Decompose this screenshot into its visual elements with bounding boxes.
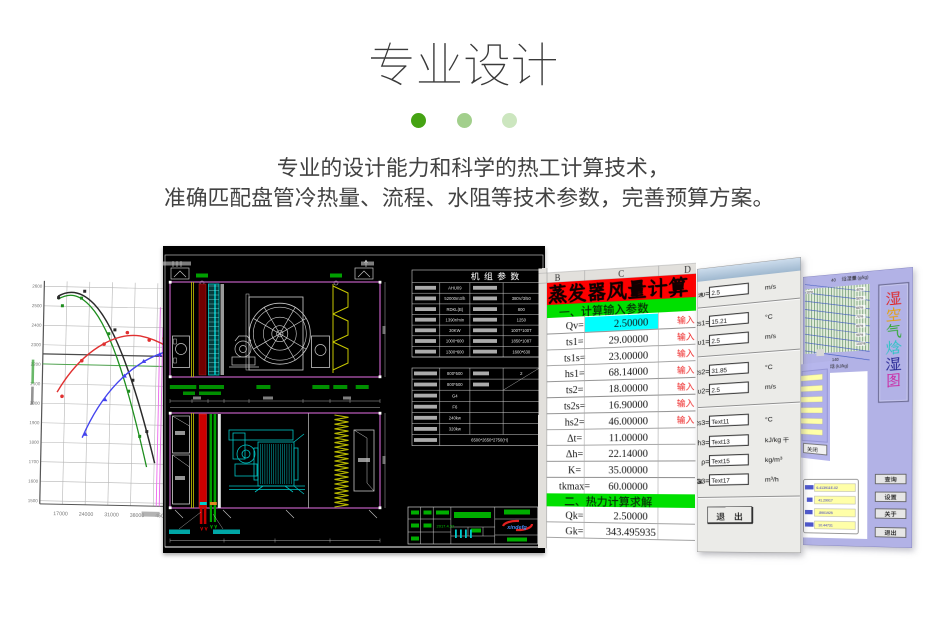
svg-text:10%: 10% bbox=[806, 289, 813, 294]
svg-text:B: B bbox=[555, 273, 561, 283]
svg-text:Δt=: Δt= bbox=[567, 433, 582, 444]
svg-text:υ1=: υ1= bbox=[698, 339, 710, 347]
svg-text:2400: 2400 bbox=[31, 323, 42, 328]
svg-text:Δh=: Δh= bbox=[566, 450, 583, 461]
svg-text:1850*1087: 1850*1087 bbox=[511, 339, 532, 344]
svg-text:17000: 17000 bbox=[53, 511, 68, 517]
svg-text:1250: 1250 bbox=[517, 317, 527, 322]
svg-text:m³/h: m³/h bbox=[765, 477, 779, 484]
svg-text:h3=: h3= bbox=[698, 440, 710, 447]
svg-text:10.44731: 10.44731 bbox=[818, 523, 833, 528]
svg-text:°C: °C bbox=[765, 417, 773, 424]
svg-text:Text15: Text15 bbox=[711, 458, 729, 465]
svg-text:Qv=: Qv= bbox=[566, 321, 584, 333]
svg-text:hs1=: hs1= bbox=[565, 369, 585, 381]
svg-text:2.5: 2.5 bbox=[711, 387, 720, 394]
svg-text:140: 140 bbox=[832, 357, 839, 362]
svg-text:35.00000: 35.00000 bbox=[608, 465, 648, 476]
svg-text:100%: 100% bbox=[856, 341, 866, 346]
svg-text:68.14000: 68.14000 bbox=[609, 367, 649, 380]
svg-text:G4: G4 bbox=[452, 393, 458, 398]
svg-text:ts2s=: ts2s= bbox=[564, 401, 586, 413]
svg-text:(kJ/kg): (kJ/kg) bbox=[836, 364, 848, 369]
svg-text:1300*600: 1300*600 bbox=[446, 349, 465, 354]
svg-text:1600: 1600 bbox=[28, 479, 39, 484]
svg-text:.8901925: .8901925 bbox=[818, 510, 833, 515]
svg-text:24000: 24000 bbox=[79, 512, 94, 518]
svg-text:60%: 60% bbox=[856, 305, 864, 310]
svg-text:D: D bbox=[684, 264, 691, 275]
svg-text:380V/3/50: 380V/3/50 bbox=[512, 296, 532, 301]
svg-text:80%: 80% bbox=[856, 323, 864, 328]
svg-text:1600*630: 1600*630 bbox=[512, 349, 531, 354]
svg-text:1390r/min: 1390r/min bbox=[446, 317, 465, 322]
svg-text:1500: 1500 bbox=[28, 498, 39, 503]
svg-text:Text13: Text13 bbox=[711, 439, 729, 447]
svg-text:50%: 50% bbox=[856, 296, 864, 301]
svg-text:AHU09: AHU09 bbox=[448, 286, 462, 291]
svg-text:6500*2650*2750(H): 6500*2650*2750(H) bbox=[471, 438, 509, 443]
svg-text:kg/m³: kg/m³ bbox=[765, 457, 782, 465]
svg-text:2500: 2500 bbox=[32, 303, 43, 308]
svg-text:16.90000: 16.90000 bbox=[609, 400, 649, 412]
svg-text:F6: F6 bbox=[452, 404, 458, 409]
svg-text:Gk=: Gk= bbox=[565, 527, 583, 539]
svg-text:xindefg: xindefg bbox=[506, 525, 527, 531]
svg-text:40: 40 bbox=[831, 278, 836, 283]
svg-text:m/s: m/s bbox=[765, 384, 776, 392]
svg-text:800*500: 800*500 bbox=[447, 382, 463, 387]
svg-text:1800: 1800 bbox=[29, 440, 40, 445]
svg-text:υ=: υ= bbox=[701, 291, 709, 299]
svg-text:kJ/kg: kJ/kg bbox=[765, 437, 781, 445]
svg-text:2300: 2300 bbox=[31, 342, 42, 347]
svg-text:100T*100T: 100T*100T bbox=[511, 328, 532, 333]
svg-text:2017.4.22: 2017.4.22 bbox=[437, 524, 456, 529]
svg-text:ρ=: ρ= bbox=[701, 459, 710, 466]
svg-text:1700: 1700 bbox=[29, 459, 40, 464]
svg-text:ts1s=: ts1s= bbox=[564, 353, 586, 365]
svg-text:40%: 40% bbox=[856, 287, 864, 292]
svg-text:hs2=: hs2= bbox=[565, 417, 585, 428]
svg-text:2.50000: 2.50000 bbox=[614, 512, 649, 524]
svg-text:Qk=: Qk= bbox=[565, 511, 583, 522]
svg-text:C: C bbox=[618, 269, 624, 280]
svg-text:11.00000: 11.00000 bbox=[609, 433, 648, 445]
svg-text:°C: °C bbox=[765, 314, 773, 322]
svg-text:30KW: 30KW bbox=[449, 328, 460, 333]
svg-text:m/s: m/s bbox=[765, 284, 776, 292]
svg-text:240kw: 240kw bbox=[449, 416, 462, 421]
svg-text:1000*600: 1000*600 bbox=[446, 339, 465, 344]
svg-text:29.00000: 29.00000 bbox=[609, 334, 649, 347]
svg-text:ts3=: ts3= bbox=[697, 420, 710, 428]
svg-text:2.50000: 2.50000 bbox=[614, 317, 649, 330]
svg-text:15.21: 15.21 bbox=[711, 318, 727, 326]
svg-text:6.413911E-02: 6.413911E-02 bbox=[816, 486, 838, 491]
svg-text:ts2=: ts2= bbox=[566, 385, 584, 397]
svg-text:tkmax=: tkmax= bbox=[559, 482, 590, 493]
svg-text:ts2=: ts2= bbox=[697, 369, 710, 377]
svg-text:m/s: m/s bbox=[765, 333, 776, 341]
svg-text:ts1=: ts1= bbox=[566, 337, 584, 349]
svg-text:31000: 31000 bbox=[104, 512, 119, 518]
svg-text:90%: 90% bbox=[856, 332, 864, 337]
svg-text:(g/kg): (g/kg) bbox=[858, 275, 869, 281]
svg-text:υ2=: υ2= bbox=[698, 388, 710, 396]
svg-text:52000m3/h: 52000m3/h bbox=[444, 296, 466, 301]
svg-text:2.5: 2.5 bbox=[711, 290, 720, 298]
svg-text:46.00000: 46.00000 bbox=[609, 416, 649, 428]
svg-text:RDKL(B): RDKL(B) bbox=[446, 307, 463, 312]
svg-text:41.29917: 41.29917 bbox=[818, 498, 833, 503]
svg-text:31.85: 31.85 bbox=[711, 367, 727, 375]
svg-text:Text17: Text17 bbox=[711, 478, 729, 485]
svg-text:800*500: 800*500 bbox=[447, 371, 463, 376]
svg-text:1900: 1900 bbox=[29, 420, 40, 425]
svg-text:18.00000: 18.00000 bbox=[609, 383, 649, 395]
svg-text:70%: 70% bbox=[856, 314, 864, 319]
svg-text:°C: °C bbox=[765, 364, 773, 372]
svg-text:G3=: G3= bbox=[697, 479, 710, 486]
svg-text:800: 800 bbox=[518, 307, 526, 312]
svg-text:320kw: 320kw bbox=[449, 427, 462, 432]
svg-text:2600: 2600 bbox=[32, 284, 43, 289]
svg-text:2.5: 2.5 bbox=[711, 338, 720, 346]
svg-text:ts1=: ts1= bbox=[697, 320, 710, 328]
svg-text:343.495935: 343.495935 bbox=[606, 527, 656, 539]
svg-text:60.00000: 60.00000 bbox=[608, 482, 648, 494]
svg-text:K=: K= bbox=[568, 466, 581, 477]
svg-text:23.00000: 23.00000 bbox=[609, 350, 649, 363]
svg-text:2: 2 bbox=[520, 371, 523, 376]
svg-text:22.14000: 22.14000 bbox=[608, 449, 648, 461]
svg-text:Text11: Text11 bbox=[711, 419, 729, 427]
